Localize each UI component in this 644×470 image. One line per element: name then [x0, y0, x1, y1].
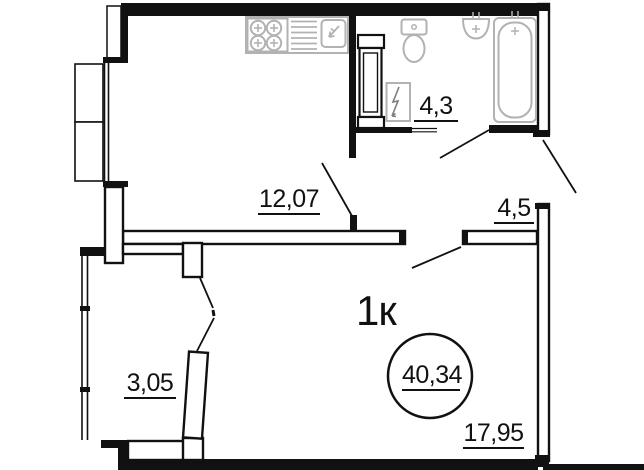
vent-bottom-cap: [358, 117, 384, 128]
room-area-label-bathroom: 4,3: [414, 93, 458, 122]
loggia-top-left-cap: [80, 247, 105, 256]
floor-plan-drawing: [0, 0, 644, 470]
vent-shaft-unit: [358, 35, 384, 128]
loggia-door-leaf: [183, 352, 208, 439]
toilet-icon: [402, 20, 427, 63]
loggia-door-swing-lower: [197, 318, 214, 351]
room-area-label-living-room: 17,95: [463, 420, 524, 449]
total-area-label: 40,34: [402, 362, 460, 391]
bathtub-icon: [494, 11, 536, 122]
bathroom-fixtures: [387, 11, 537, 122]
entrance-jamb-bottom: [535, 203, 550, 209]
wall-bath-bottom-right: [489, 125, 537, 133]
stove-icon: [248, 19, 288, 52]
apartment-type-label: 1к: [356, 290, 396, 332]
room-area-label-hallway: 4,5: [494, 195, 534, 224]
water-heater-icon: [387, 83, 411, 121]
kitchen-window-bay-upper: [75, 64, 103, 122]
vent-top-cap: [358, 35, 384, 48]
wall-top-right-cap: [536, 3, 549, 11]
wall-loggia-right: [183, 438, 203, 460]
wall-left-mid: [105, 187, 123, 263]
wall-bottom: [118, 459, 538, 470]
entrance-door-swing: [543, 140, 576, 193]
wall-kitchen-bath-divider: [349, 16, 356, 158]
wall-left-notch: [107, 6, 121, 58]
kitchen-door-swing: [322, 163, 352, 216]
loggia-door-swing-dot: [213, 310, 214, 316]
kitchen-door-post: [350, 215, 357, 232]
wall-jog-upper: [103, 57, 128, 63]
floor-plan: 1к 12,07 4,3 4,5 3,05 17,95 40,34: [0, 0, 644, 470]
loggia-door-swing-upper: [200, 278, 213, 308]
wall-right-lower: [538, 204, 549, 461]
wall-hall-cap: [463, 231, 468, 244]
room-area-label-kitchen-living: 12,07: [258, 186, 320, 215]
entrance-jamb-top: [533, 130, 550, 137]
wall-loggia-bottom: [128, 441, 184, 460]
wall-left-top: [121, 3, 128, 59]
wall-middle: [123, 231, 405, 244]
wall-loggia-top: [123, 244, 183, 254]
bathroom-door-swing: [440, 130, 489, 158]
wall-outer-extension: [543, 464, 644, 470]
wall-middle-cap: [399, 231, 405, 244]
room-area-label-loggia: 3,05: [124, 370, 176, 399]
thresholds: [412, 129, 437, 132]
kitchen-window-bay-lower: [75, 122, 103, 181]
sink-icon: [322, 20, 346, 47]
kitchen-counter-icon: [246, 17, 348, 53]
wall-hall-bottom: [463, 231, 537, 244]
vent-body-inner: [364, 53, 378, 112]
dish-drainer-icon: [291, 22, 317, 50]
wall-jog-lower: [103, 181, 128, 187]
wall-top: [121, 3, 538, 16]
wall-right-upper: [538, 4, 549, 134]
living-room-door-swing: [412, 247, 461, 268]
loggia-door-post: [183, 243, 202, 277]
